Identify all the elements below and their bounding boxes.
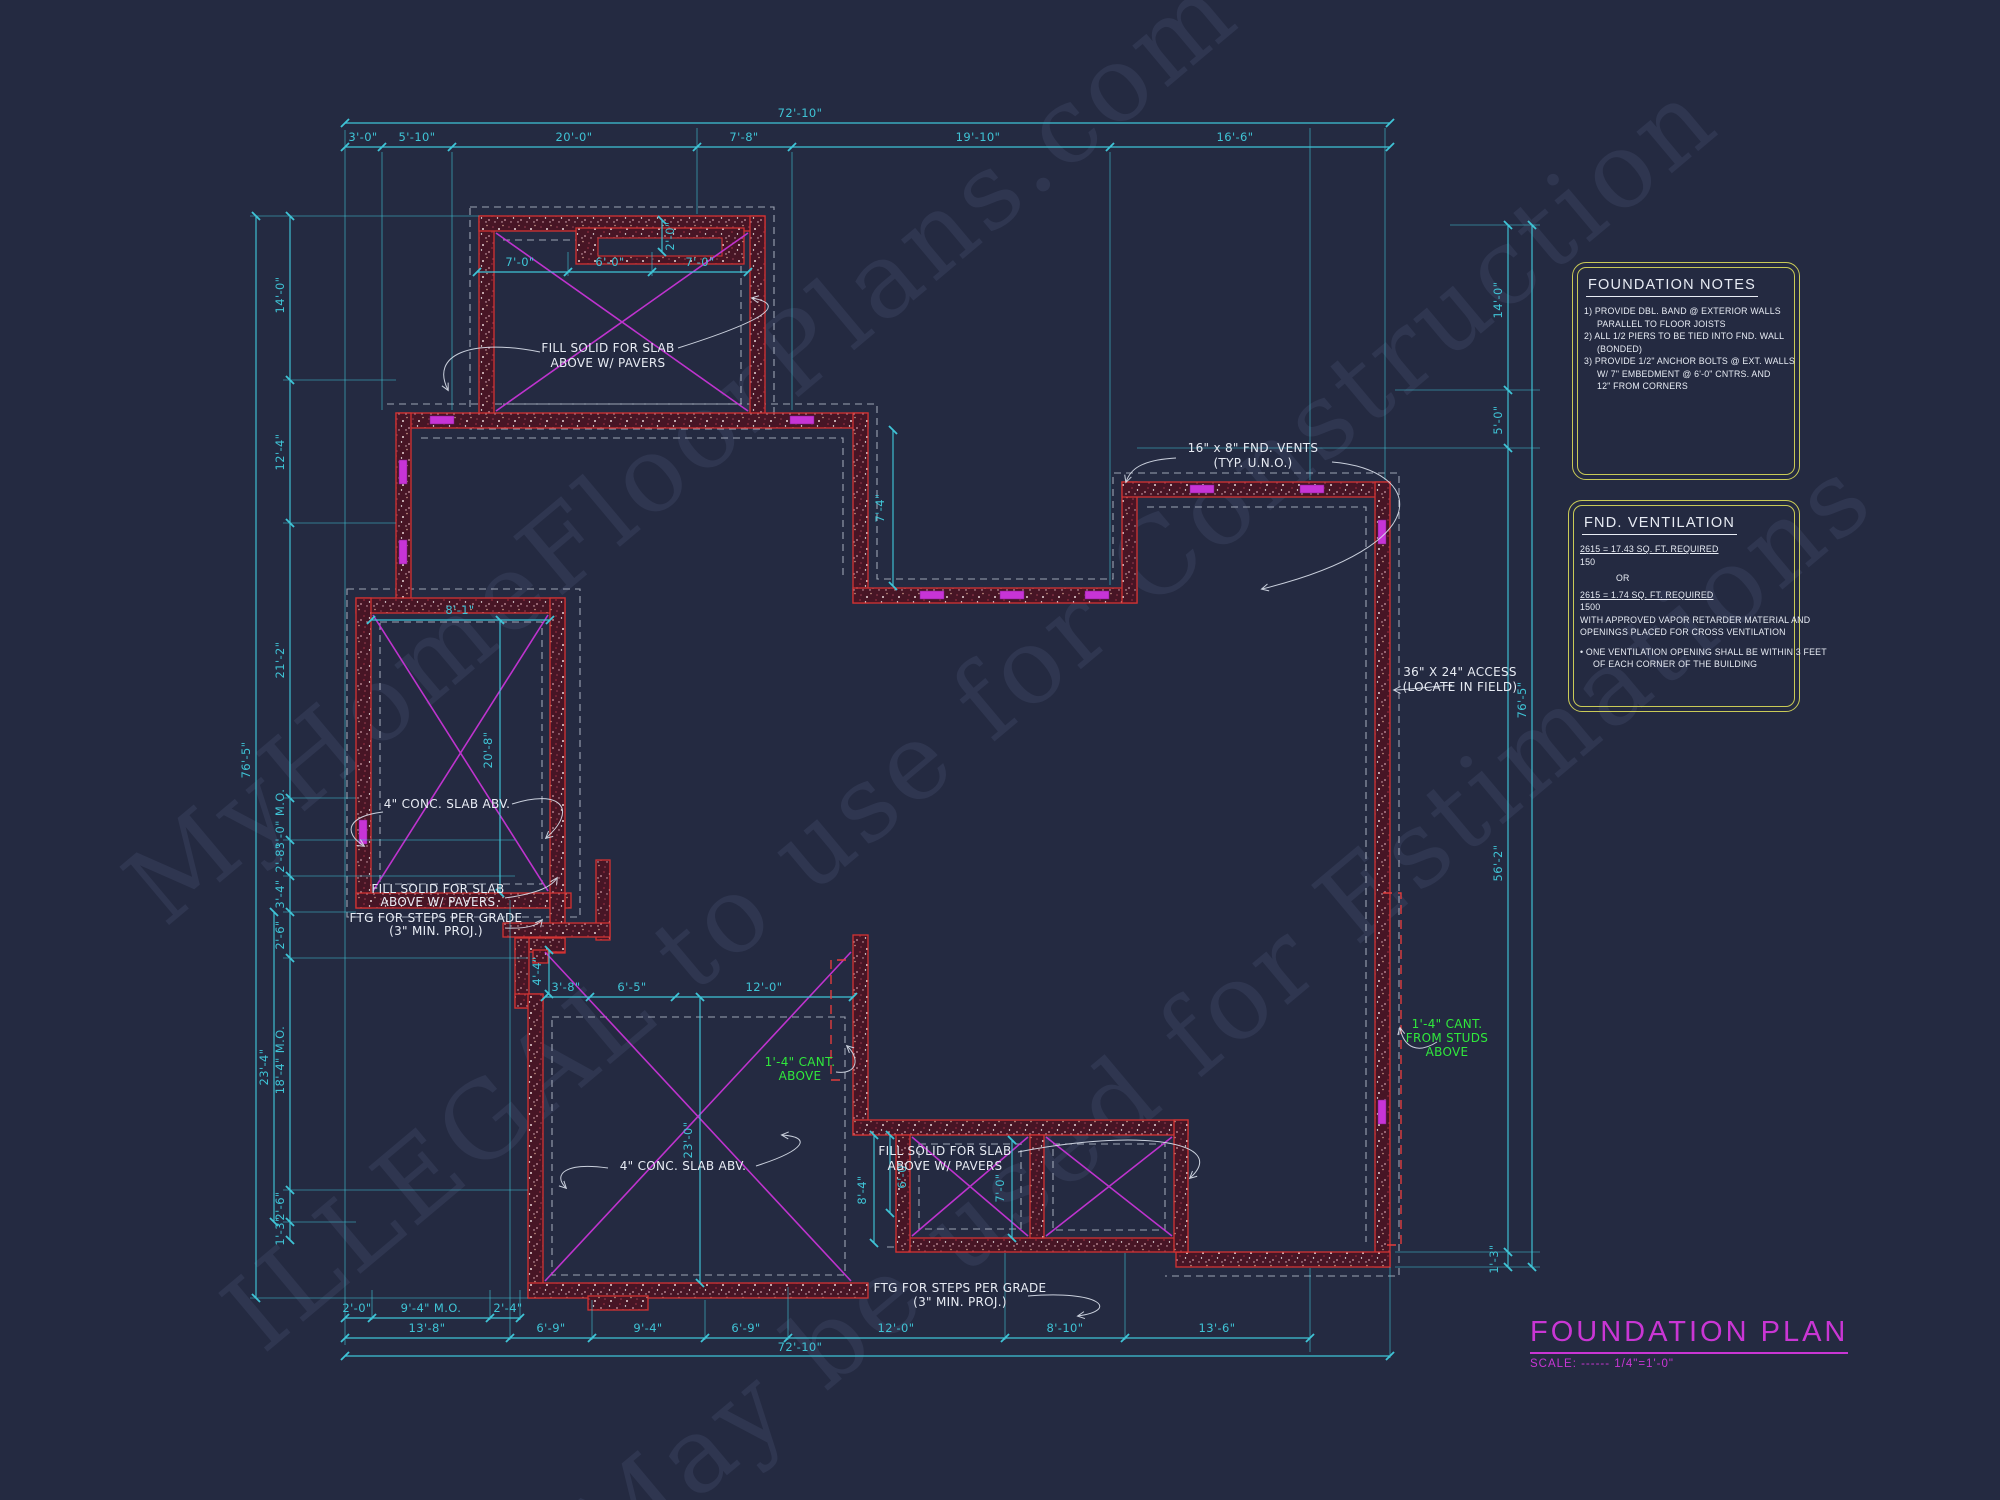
dim-label: 5'-0" bbox=[1491, 405, 1505, 434]
dim-label: 6'-0" bbox=[595, 255, 624, 269]
annotation-fnd-vents: 16" x 8" FND. VENTS bbox=[1188, 441, 1319, 455]
dim-label: 3'-4" bbox=[273, 879, 287, 908]
annotation-cant-above: ABOVE bbox=[779, 1069, 822, 1083]
dim-label: 4'-4" bbox=[530, 956, 544, 985]
dim-label: 18'-4" M.O. bbox=[273, 1026, 287, 1094]
plan-scale: SCALE: ------ 1/4"=1'-0" bbox=[1530, 1358, 1848, 1370]
annotation-ftg-steps: (3" MIN. PROJ.) bbox=[913, 1295, 1007, 1309]
dim-label: 23'-0" bbox=[681, 1122, 695, 1159]
annotation-fnd-vents: (TYP. U.N.O.) bbox=[1213, 456, 1292, 470]
annotation-cant-studs: 1'-4" CANT. bbox=[1412, 1017, 1483, 1031]
dim-label: 7'-0" bbox=[993, 1173, 1007, 1202]
annotation-ftg-steps: FTG FOR STEPS PER GRADE bbox=[874, 1281, 1047, 1295]
dim-label: 3'-8" bbox=[551, 980, 580, 994]
annotation-cant-above: 1'-4" CANT. bbox=[765, 1055, 836, 1069]
plan-drawing: MyHomeFloorPlans.com ILLEGAL to use for … bbox=[0, 0, 2000, 1500]
dim-label: 12'-0" bbox=[878, 1321, 915, 1335]
vent-box-title: FND. VENTILATION bbox=[1582, 513, 1737, 535]
vent-formula-denominator: 150 bbox=[1580, 556, 1788, 569]
dim-label: 56'-2" bbox=[1491, 845, 1505, 882]
annotation-fill-solid-pavers: FILL SOLID FOR SLAB bbox=[541, 341, 674, 355]
annotation-ftg-steps: FTG FOR STEPS PER GRADE bbox=[350, 911, 523, 925]
dim-label: 8'-1" bbox=[445, 603, 474, 617]
annotation-fill-solid-pavers: ABOVE W/ PAVERS bbox=[551, 356, 666, 370]
dim-label: 8'-10" bbox=[1047, 1321, 1084, 1335]
annotation-conc-slab: 4" CONC. SLAB ABV. bbox=[620, 1159, 747, 1173]
annotation-fill-solid-pavers: ABOVE W/ PAVERS bbox=[381, 895, 496, 909]
note-line: 3) PROVIDE 1/2" ANCHOR BOLTS @ EXT. WALL… bbox=[1584, 355, 1788, 368]
vent-note: OPENINGS PLACED FOR CROSS VENTILATION bbox=[1580, 626, 1788, 639]
dim-label: 14'-0" bbox=[273, 277, 287, 314]
dim-label: 3'-0" M.O. bbox=[273, 789, 287, 850]
dim-label: 19'-10" bbox=[956, 130, 1001, 144]
annotation-access: 36" X 24" ACCESS bbox=[1403, 665, 1517, 679]
dims-top: 72'-10" 3'-0" 5'-10" 20'-0" 7'-8" 19'-10… bbox=[345, 106, 1390, 147]
dim-label: 1'-3" bbox=[273, 1216, 287, 1245]
vent-formula: 2615 = 17.43 SQ. FT. REQUIRED bbox=[1580, 543, 1788, 556]
dim-label: 13'-6" bbox=[1199, 1321, 1236, 1335]
fnd-ventilation-box: FND. VENTILATION 2615 = 17.43 SQ. FT. RE… bbox=[1568, 500, 1800, 712]
vent-note: • ONE VENTILATION OPENING SHALL BE WITHI… bbox=[1580, 646, 1788, 659]
dim-label: 8'-4" bbox=[855, 1175, 869, 1204]
dim-label: 16'-6" bbox=[1217, 130, 1254, 144]
annotation-access: (LOCATE IN FIELD) bbox=[1403, 680, 1518, 694]
annotation-fill-solid-pavers: ABOVE W/ PAVERS bbox=[888, 1159, 1003, 1173]
dim-label: 2'-0" bbox=[663, 221, 677, 250]
dim-label: 76'-5" bbox=[239, 742, 253, 779]
note-line: 1) PROVIDE DBL. BAND @ EXTERIOR WALLS bbox=[1584, 305, 1788, 318]
dim-label: 72'-10" bbox=[778, 106, 823, 120]
note-line: 2) ALL 1/2 PIERS TO BE TIED INTO FND. WA… bbox=[1584, 330, 1788, 343]
foundation-plan-sheet: MyHomeFloorPlans.com ILLEGAL to use for … bbox=[0, 0, 2000, 1500]
dim-label: 13'-8" bbox=[409, 1321, 446, 1335]
foundation-notes-box: FOUNDATION NOTES 1) PROVIDE DBL. BAND @ … bbox=[1572, 262, 1800, 480]
vent-or: OR bbox=[1616, 572, 1788, 585]
note-line: (BONDED) bbox=[1584, 343, 1788, 356]
dim-label: 9'-4" bbox=[633, 1321, 662, 1335]
dim-label: 72'-10" bbox=[778, 1340, 823, 1354]
dim-label: 21'-2" bbox=[273, 642, 287, 679]
annotation-conc-slab: 4" CONC. SLAB ABV. bbox=[384, 797, 511, 811]
dim-label: 2'-6" bbox=[273, 920, 287, 949]
dim-label: 12'-0" bbox=[746, 980, 783, 994]
dim-label: 20'-0" bbox=[556, 130, 593, 144]
watermark: MyHomeFloorPlans.com ILLEGAL to use for … bbox=[0, 0, 1991, 1500]
dim-label: 20'-8" bbox=[481, 732, 495, 769]
dim-label: 7'-0" bbox=[505, 255, 534, 269]
dim-label: 6'-5" bbox=[617, 980, 646, 994]
dim-label: 7'-0" bbox=[685, 255, 714, 269]
porch-bump-opening bbox=[598, 238, 722, 256]
vent-formula-denominator: 1500 bbox=[1580, 601, 1788, 614]
dim-label: 14'-0" bbox=[1491, 282, 1505, 319]
dim-label: 5'-10" bbox=[399, 130, 436, 144]
annotation-ftg-steps: (3" MIN. PROJ.) bbox=[389, 924, 483, 938]
title-block: FOUNDATION PLAN SCALE: ------ 1/4"=1'-0" bbox=[1530, 1316, 1848, 1370]
dim-label: 2'-0" bbox=[342, 1301, 371, 1315]
note-line: 12" FROM CORNERS bbox=[1584, 380, 1788, 393]
dim-label: 9'-4" M.O. bbox=[401, 1301, 462, 1315]
dim-label: 6'-9" bbox=[536, 1321, 565, 1335]
vent-note: OF EACH CORNER OF THE BUILDING bbox=[1580, 658, 1788, 671]
dim-label: 1'-3" bbox=[1487, 1244, 1501, 1273]
dim-label: 7'-4" bbox=[873, 493, 887, 522]
dim-label: 3'-0" bbox=[348, 130, 377, 144]
dim-label: 6'-9" bbox=[731, 1321, 760, 1335]
vent-note: WITH APPROVED VAPOR RETARDER MATERIAL AN… bbox=[1580, 614, 1788, 627]
plan-title: FOUNDATION PLAN bbox=[1530, 1316, 1848, 1354]
dim-label: 2'-6" bbox=[273, 1191, 287, 1220]
dim-label: 23'-4" bbox=[257, 1049, 271, 1086]
notes-box-title: FOUNDATION NOTES bbox=[1586, 275, 1758, 297]
dim-label: 12'-4" bbox=[273, 434, 287, 471]
annotation-fill-solid-pavers: FILL SOLID FOR SLAB bbox=[371, 882, 504, 896]
annotation-cant-studs: ABOVE bbox=[1426, 1045, 1469, 1059]
note-line: W/ 7" EMBEDMENT @ 6'-0" CNTRS. AND bbox=[1584, 368, 1788, 381]
annotation-fill-solid-pavers: FILL SOLID FOR SLAB bbox=[878, 1144, 1011, 1158]
dim-label: 7'-8" bbox=[729, 130, 758, 144]
note-line: PARALLEL TO FLOOR JOISTS bbox=[1584, 318, 1788, 331]
vent-formula: 2615 = 1.74 SQ. FT. REQUIRED bbox=[1580, 589, 1788, 602]
dim-label: 2'-8" bbox=[273, 843, 287, 872]
dim-label: 2'-4" bbox=[493, 1301, 522, 1315]
annotation-cant-studs: FROM STUDS bbox=[1406, 1031, 1488, 1045]
